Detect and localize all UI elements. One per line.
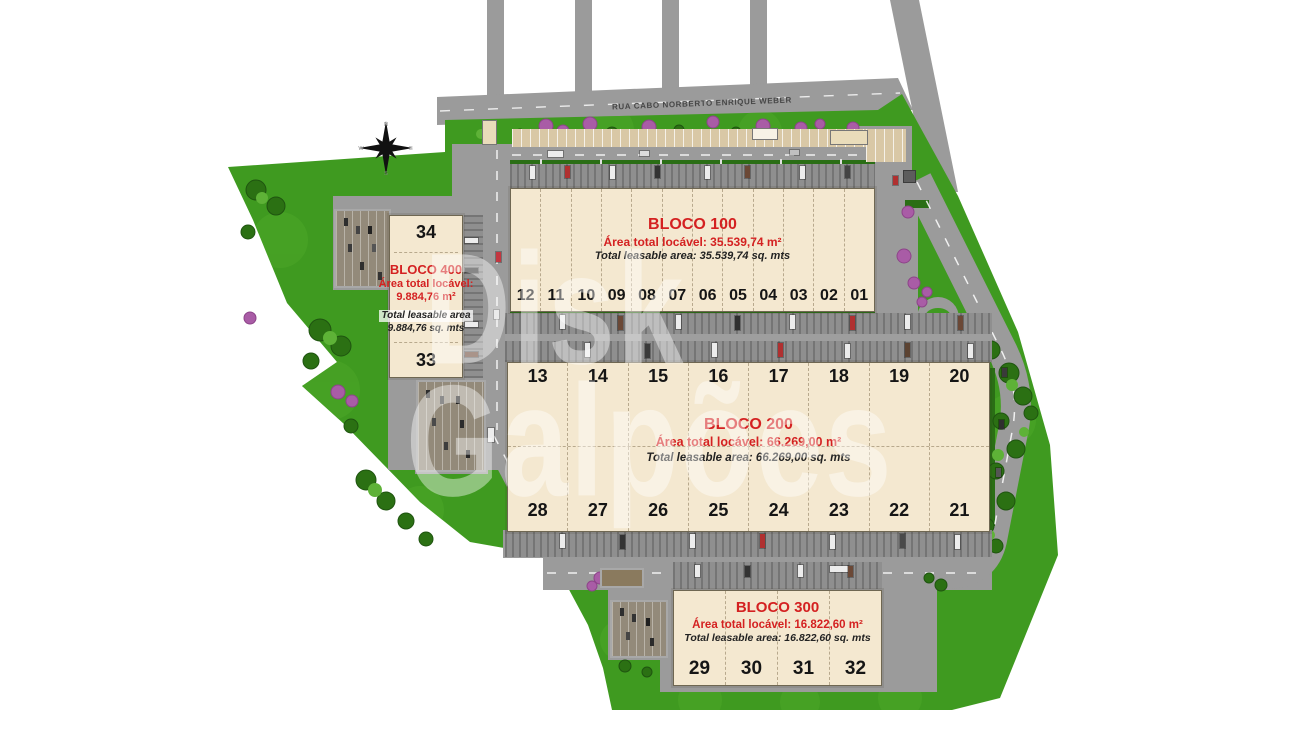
entry-kiosk <box>482 120 497 145</box>
compass-rose-icon: N S E W <box>358 120 414 176</box>
bloco-100-area-pt: Área total locável: 35.539,74 m² <box>511 235 874 250</box>
bloco-200-area-pt: Área total locável: 66.269,00 m² <box>508 435 989 451</box>
unit-label: 19 <box>889 363 909 387</box>
unit-label: 11 <box>548 287 565 311</box>
compass-north-label: N <box>384 122 388 128</box>
utility-building <box>903 170 916 183</box>
gate-parking <box>866 129 906 162</box>
loading-dock-central-south <box>505 341 992 362</box>
unit-label: 33 <box>416 350 436 370</box>
gatehouse <box>830 130 868 145</box>
bloco-100-area-en: Total leasable area: 35.539,74 sq. mts <box>511 250 874 264</box>
unit-label: 34 <box>416 222 436 242</box>
bloco-100-title: BLOCO 100 <box>511 215 874 235</box>
unit-label: 22 <box>889 500 909 531</box>
unit-label: 16 <box>708 363 728 387</box>
unit-label: 02 <box>820 287 838 311</box>
building-bloco-400: 34 BLOCO 400 Área total locável: 9.884,7… <box>389 215 463 378</box>
unit-label: 18 <box>829 363 849 387</box>
bloco-400-area-en-1: Total leasable area <box>379 310 472 322</box>
unit-label: 01 <box>850 287 868 311</box>
building-bloco-100: BLOCO 100 Área total locável: 35.539,74 … <box>510 188 875 312</box>
unit-label: 07 <box>668 287 686 311</box>
unit-label: 27 <box>588 500 608 531</box>
unit-label: 12 <box>517 287 535 311</box>
unit-label: 13 <box>528 363 548 387</box>
bloco-200-title: BLOCO 200 <box>508 415 989 435</box>
central-drive-lane <box>505 334 992 341</box>
building-bloco-300: BLOCO 300 Área total locável: 16.822,60 … <box>673 590 882 686</box>
visitor-parking-strip <box>512 129 872 147</box>
unit-label: 15 <box>648 363 668 387</box>
loading-dock-b200-south <box>505 530 992 557</box>
site-plan: BLOCO 100 Área total locável: 35.539,74 … <box>0 0 1307 737</box>
unit-label: 21 <box>949 500 969 531</box>
unit-label: 25 <box>708 500 728 531</box>
parking-lot-small <box>600 568 644 588</box>
building-bloco-200: 13 14 15 16 17 18 19 20 BLOCO 200 Área t… <box>507 362 990 532</box>
unit-label: 20 <box>949 363 969 387</box>
parking-lot-south <box>610 600 668 658</box>
unit-label: 06 <box>699 287 717 311</box>
unit-label: 17 <box>769 363 789 387</box>
unit-label: 10 <box>577 287 595 311</box>
unit-label: 29 <box>689 658 710 685</box>
parked-cars <box>344 218 348 226</box>
unit-label: 09 <box>608 287 626 311</box>
unit-label: 14 <box>588 363 608 387</box>
bloco-200-area-en: Total leasable area: 66.269,00 sq. mts <box>508 451 989 465</box>
bloco-300-area-pt: Área total locável: 16.822,60 m² <box>674 618 881 632</box>
bloco-300-area-en: Total leasable area: 16.822,60 sq. mts <box>674 632 881 645</box>
compass-west-label: W <box>358 146 364 152</box>
unit-label: 08 <box>638 287 656 311</box>
compass-south-label: S <box>384 171 388 176</box>
compass-east-label: E <box>409 146 413 152</box>
parked-cars <box>426 390 430 398</box>
parked-cars <box>620 608 624 616</box>
bloco-300-title: BLOCO 300 <box>674 599 881 618</box>
unit-label: 31 <box>793 658 814 685</box>
entrance-canopy <box>752 128 778 140</box>
bloco-400-area-pt-1: Área total locável: <box>356 278 496 291</box>
unit-label: 05 <box>729 287 747 311</box>
unit-label: 24 <box>769 500 789 531</box>
unit-label: 23 <box>829 500 849 531</box>
unit-label: 04 <box>759 287 777 311</box>
loading-dock-central-north <box>505 313 992 334</box>
bloco-400-area-pt-2: 9.884,76 m² <box>356 291 496 304</box>
unit-label: 30 <box>741 658 762 685</box>
unit-label: 28 <box>528 500 548 531</box>
unit-label: 03 <box>790 287 808 311</box>
unit-label: 26 <box>648 500 668 531</box>
unit-label: 32 <box>845 658 866 685</box>
